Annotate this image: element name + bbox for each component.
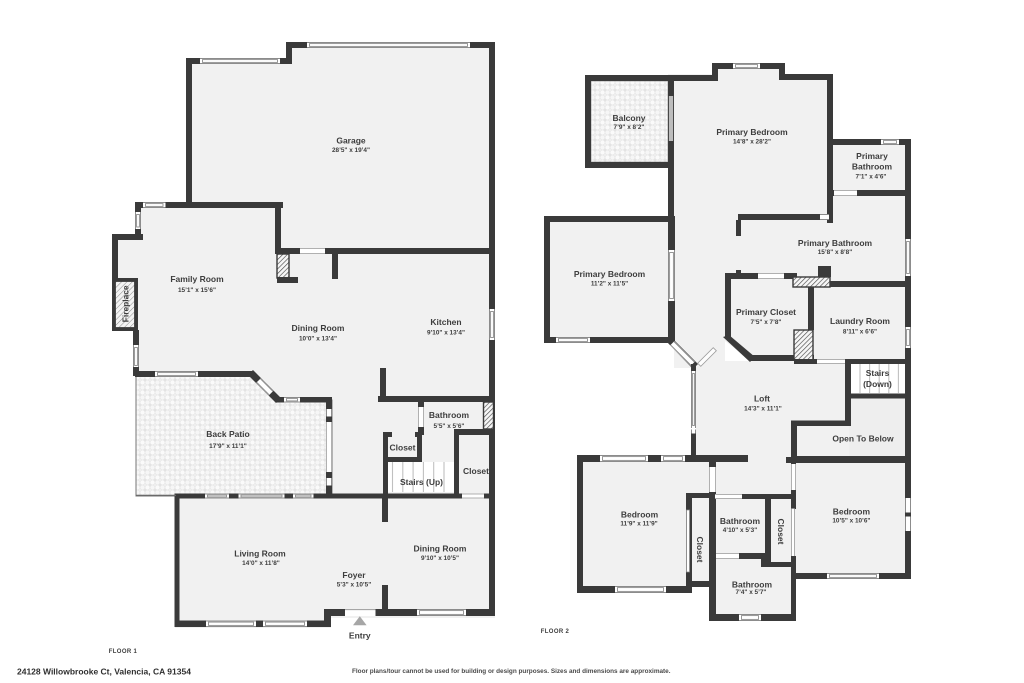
- svg-text:Garage: Garage: [336, 136, 366, 146]
- svg-text:Laundry Room: Laundry Room: [830, 316, 890, 326]
- svg-text:11’9" x 11’9": 11’9" x 11’9": [620, 521, 657, 528]
- svg-text:Stairs (Up): Stairs (Up): [400, 477, 443, 487]
- svg-text:8’11" x 6’6": 8’11" x 6’6": [843, 329, 877, 336]
- svg-text:14’3" x 11’1": 14’3" x 11’1": [744, 406, 782, 413]
- svg-text:10’5" x 10’6": 10’5" x 10’6": [832, 518, 870, 525]
- svg-text:Open To Below: Open To Below: [832, 434, 894, 444]
- svg-text:Bathroom: Bathroom: [720, 516, 761, 526]
- svg-text:FLOOR 2: FLOOR 2: [541, 629, 570, 635]
- svg-text:FLOOR 1: FLOOR 1: [109, 649, 138, 655]
- svg-text:Balcony: Balcony: [612, 113, 645, 123]
- svg-text:9’10" x 10’5": 9’10" x 10’5": [421, 555, 459, 562]
- svg-text:Stairs: Stairs: [866, 368, 890, 378]
- svg-text:Primary Closet: Primary Closet: [736, 307, 796, 317]
- svg-text:Foyer: Foyer: [342, 570, 366, 580]
- svg-text:Kitchen: Kitchen: [430, 317, 461, 327]
- svg-text:Bathroom: Bathroom: [429, 410, 470, 420]
- svg-text:14’8" x 28’2": 14’8" x 28’2": [733, 138, 771, 145]
- svg-text:Closet: Closet: [695, 537, 705, 563]
- svg-text:Primary: Primary: [856, 151, 888, 161]
- svg-text:15’8" x 8’8": 15’8" x 8’8": [818, 249, 853, 256]
- svg-text:Closet: Closet: [390, 443, 416, 453]
- svg-text:Dining Room: Dining Room: [292, 323, 345, 333]
- svg-text:Family Room: Family Room: [170, 274, 224, 284]
- svg-text:10’0" x 13’4": 10’0" x 13’4": [299, 336, 337, 343]
- svg-text:Loft: Loft: [754, 394, 770, 404]
- svg-text:Dining Room: Dining Room: [414, 544, 467, 554]
- svg-text:17’9" x 11’1": 17’9" x 11’1": [209, 443, 247, 450]
- svg-text:Back Patio: Back Patio: [206, 429, 249, 439]
- svg-text:Closet: Closet: [463, 466, 489, 476]
- svg-text:Living Room: Living Room: [234, 549, 286, 559]
- svg-text:14’0" x 11’8": 14’0" x 11’8": [242, 560, 280, 567]
- svg-text:Bedroom: Bedroom: [833, 507, 871, 517]
- svg-text:7’9" x 8’2": 7’9" x 8’2": [614, 124, 645, 131]
- svg-text:28’5" x 19’4": 28’5" x 19’4": [332, 147, 370, 154]
- svg-text:(Down): (Down): [863, 379, 892, 389]
- svg-text:Primary Bedroom: Primary Bedroom: [574, 269, 646, 279]
- svg-text:Closet: Closet: [776, 519, 786, 545]
- svg-text:15’1" x 15’6": 15’1" x 15’6": [178, 287, 216, 294]
- svg-text:4’10" x 5’3": 4’10" x 5’3": [723, 527, 758, 534]
- svg-text:5’3" x 10’5": 5’3" x 10’5": [337, 582, 372, 589]
- svg-text:Entry: Entry: [349, 631, 371, 641]
- svg-text:Floor plans/tour cannot be use: Floor plans/tour cannot be used for buil…: [352, 668, 671, 675]
- svg-text:Bathroom: Bathroom: [732, 580, 773, 590]
- svg-text:Bathroom: Bathroom: [852, 162, 893, 172]
- svg-text:11’2" x 11’5": 11’2" x 11’5": [591, 281, 628, 288]
- svg-text:24128 Willowbrooke Ct, Valenci: 24128 Willowbrooke Ct, Valencia, CA 9135…: [17, 667, 191, 677]
- svg-text:7’4" x 5’7": 7’4" x 5’7": [736, 589, 767, 596]
- svg-text:7’1" x 4’6": 7’1" x 4’6": [856, 174, 887, 181]
- svg-text:9’10" x 13’4": 9’10" x 13’4": [427, 330, 465, 337]
- svg-text:5’5" x 5’6": 5’5" x 5’6": [434, 423, 465, 430]
- svg-text:Primary Bedroom: Primary Bedroom: [716, 127, 788, 137]
- svg-text:Bedroom: Bedroom: [621, 510, 659, 520]
- svg-text:Primary Bathroom: Primary Bathroom: [798, 238, 873, 248]
- svg-text:Fireplace: Fireplace: [121, 285, 131, 322]
- svg-text:7’5" x 7’8": 7’5" x 7’8": [751, 319, 782, 326]
